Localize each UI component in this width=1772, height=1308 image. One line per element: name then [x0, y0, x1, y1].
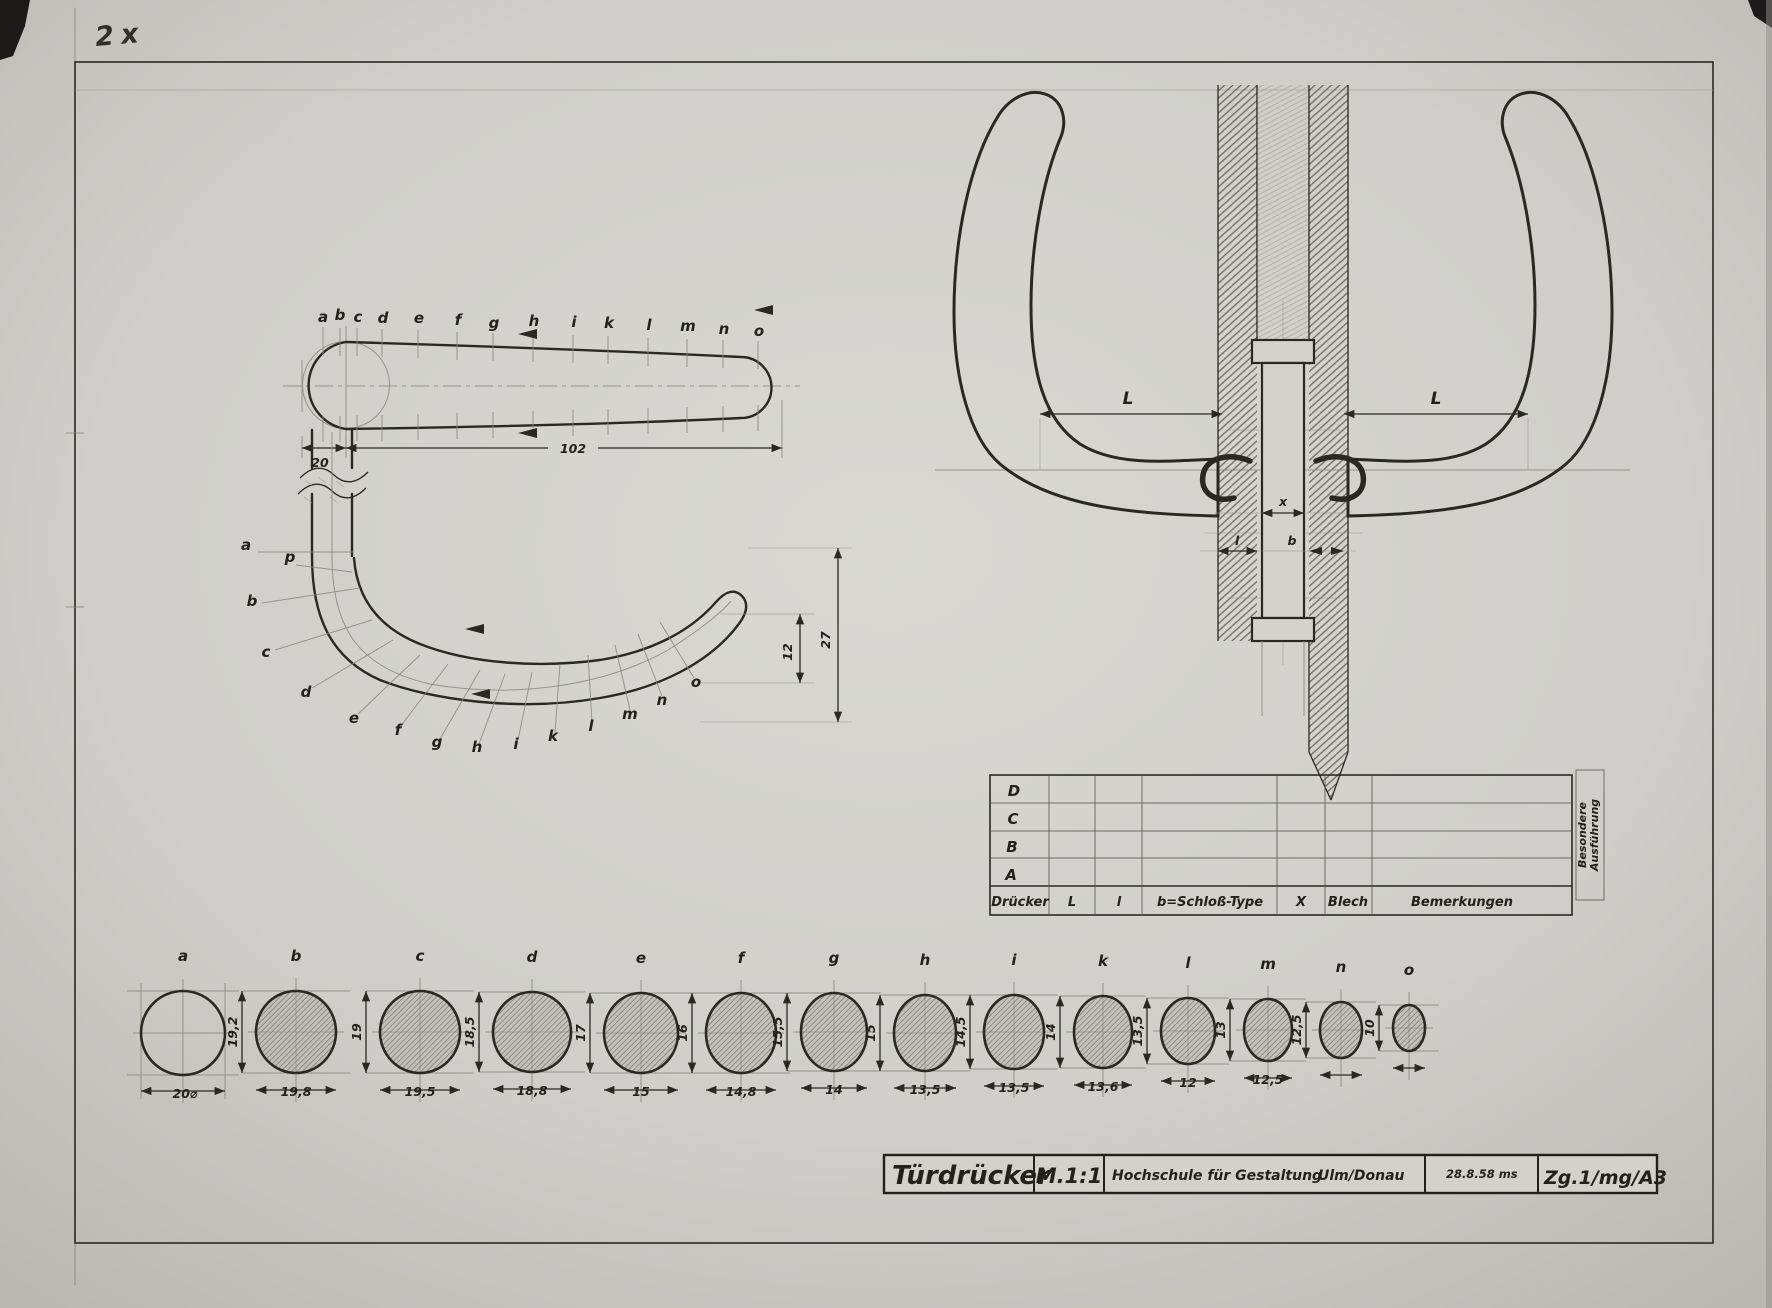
door-section-band-right: [1309, 85, 1348, 752]
table-side-note: Ausführung: [1588, 799, 1601, 872]
title-block-number: Zg.1/mg/A3: [1543, 1167, 1667, 1189]
section-width: 19,8: [281, 1084, 312, 1099]
section-label: n: [1336, 958, 1347, 976]
section-width: 19,5: [405, 1084, 436, 1099]
section-label: c: [416, 947, 425, 965]
plan-label: b: [247, 592, 258, 610]
dim-plan-width: 27: [818, 631, 833, 649]
spindle-top-cap: [1252, 340, 1314, 363]
section-label: d: [527, 948, 538, 966]
station-label: m: [680, 317, 696, 335]
table-row-label: A: [1004, 866, 1017, 884]
section-height: 14,5: [953, 1016, 968, 1047]
plan-label: o: [691, 673, 701, 691]
section-height: 14: [1043, 1023, 1058, 1040]
section-label: b: [291, 947, 302, 965]
plan-label: l: [588, 717, 594, 735]
section-label: e: [636, 949, 646, 967]
plan-label: k: [548, 727, 559, 745]
scan-edge-shadow: [1766, 0, 1772, 1308]
dim-follower-width: b: [1288, 533, 1297, 548]
plan-label: h: [472, 738, 483, 756]
table-column-header: Blech: [1328, 895, 1368, 910]
station-label: d: [378, 309, 389, 327]
dim-handle-left: L: [1123, 389, 1134, 409]
dim-grip-length: 102: [560, 441, 586, 456]
section-height: 13,5: [1130, 1015, 1145, 1046]
title-block-city: Ulm/Donau: [1318, 1168, 1405, 1184]
spindle-stem: [1262, 363, 1304, 618]
plan-label: p: [284, 548, 296, 566]
plan-label: i: [513, 735, 519, 753]
section-height: 19: [349, 1023, 364, 1041]
table-row-label: C: [1007, 810, 1018, 828]
section-width: 13,5: [999, 1080, 1030, 1095]
dim-door-thickness: l: [1235, 533, 1240, 548]
section-label: h: [920, 951, 931, 969]
section-width: 12: [1179, 1075, 1196, 1090]
dim-plan-inner: 12: [780, 643, 795, 660]
section-width: 15: [632, 1084, 650, 1099]
section-label: k: [1098, 952, 1109, 970]
section-width: 18,8: [517, 1083, 548, 1098]
section-width: 13,6: [1088, 1079, 1119, 1094]
section-height: 15,5: [770, 1016, 785, 1047]
section-label: a: [178, 947, 188, 965]
title-block-date: 28.8.58 ms: [1446, 1167, 1518, 1181]
table-column-header: l: [1117, 895, 1122, 910]
title-block-scale: M.1:1: [1036, 1164, 1103, 1188]
section-label: m: [1260, 955, 1276, 973]
station-label: k: [604, 314, 615, 332]
station-label: e: [414, 309, 424, 327]
section-label: l: [1185, 954, 1191, 972]
title-block: Türdrücker M.1:1 Hochschule für Gestaltu…: [884, 1155, 1667, 1193]
table-column-header: b=Schloß-Type: [1157, 895, 1263, 910]
section-height: 17: [573, 1024, 588, 1042]
drawing-canvas: 2x a b c d e f g h i k l m n o: [0, 0, 1772, 1308]
plan-label: e: [349, 709, 359, 727]
section-width: 20⌀: [173, 1086, 198, 1101]
section-height: 10: [1362, 1019, 1377, 1037]
station-label: c: [354, 308, 363, 326]
table-column-header: X: [1295, 895, 1307, 910]
section-height: 15: [863, 1024, 878, 1042]
title-block-title: Türdrücker: [892, 1161, 1052, 1191]
table-column-header: Drücker: [991, 895, 1050, 910]
section-width: 14,8: [726, 1084, 757, 1099]
station-label: l: [646, 316, 652, 334]
scanned-drawing-sheet: 2x a b c d e f g h i k l m n o: [0, 0, 1772, 1308]
dim-spindle-size: x: [1278, 494, 1288, 509]
section-width: 13,5: [910, 1082, 941, 1097]
section-label: o: [1404, 961, 1414, 979]
station-label: a: [318, 308, 328, 326]
section-label: g: [829, 949, 840, 967]
section-height: 18,5: [462, 1016, 477, 1047]
station-label: n: [719, 320, 730, 338]
spindle-bottom-cap: [1252, 618, 1314, 641]
section-height: 12,5: [1289, 1014, 1304, 1045]
station-label: o: [754, 322, 764, 340]
title-block-institution: Hochschule für Gestaltung: [1112, 1168, 1322, 1184]
section-label: i: [1011, 951, 1017, 969]
table-row-label: B: [1006, 838, 1017, 856]
quantity-annotation: 2x: [94, 18, 147, 53]
station-label: i: [571, 313, 577, 331]
station-label: h: [529, 312, 540, 330]
table-row-label: D: [1008, 782, 1020, 800]
section-height: 16: [675, 1024, 690, 1042]
plan-label: a: [241, 536, 251, 554]
table-column-header: L: [1068, 895, 1076, 910]
plan-label: n: [657, 691, 668, 709]
plan-label: c: [262, 643, 271, 661]
section-width: 12,5: [1253, 1072, 1284, 1087]
plan-label: m: [622, 705, 638, 723]
section-height: 13: [1213, 1021, 1228, 1038]
plan-label: g: [432, 733, 443, 751]
station-label: b: [335, 306, 346, 324]
station-label: g: [489, 314, 500, 332]
section-height: 19,2: [225, 1017, 240, 1048]
plan-label: d: [301, 683, 312, 701]
table-column-header: Bemerkungen: [1411, 895, 1513, 910]
section-width: 14: [825, 1082, 842, 1097]
dim-handle-right: L: [1431, 389, 1442, 409]
